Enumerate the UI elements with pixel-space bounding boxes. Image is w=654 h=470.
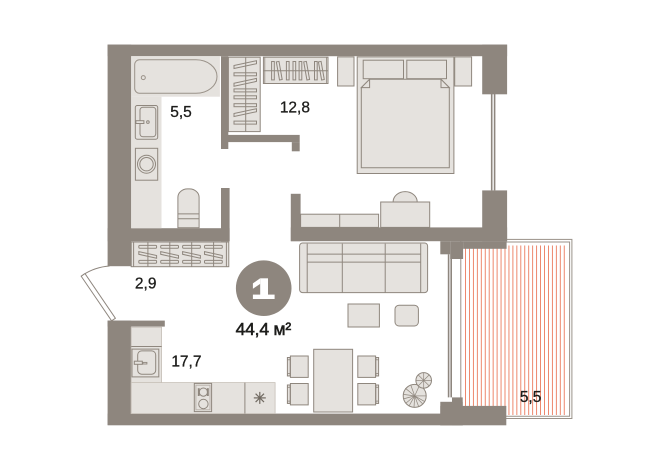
svg-text:5,5: 5,5 [170, 104, 192, 121]
svg-text:5,5: 5,5 [520, 389, 542, 406]
svg-text:44,4 м²: 44,4 м² [236, 319, 292, 339]
svg-text:12,8: 12,8 [280, 100, 310, 117]
svg-text:17,7: 17,7 [171, 354, 201, 371]
svg-text:2,9: 2,9 [135, 276, 157, 293]
